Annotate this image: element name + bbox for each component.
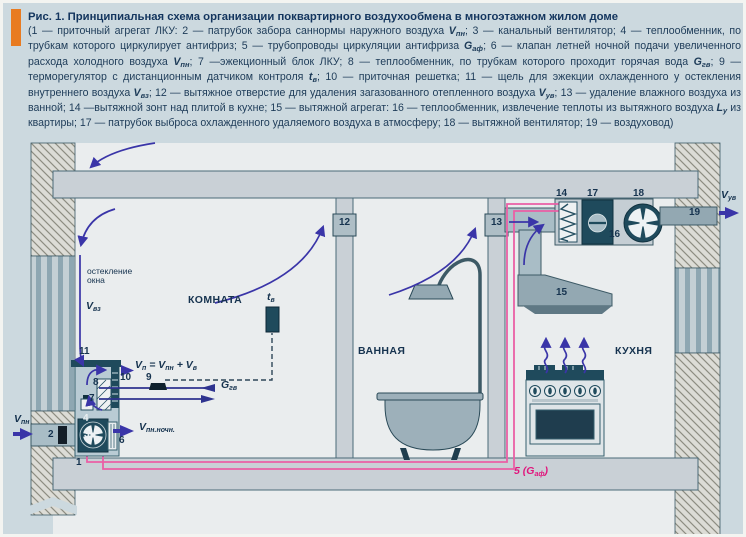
exhaust-fan-icon <box>624 204 662 242</box>
exhaust-opening-12 <box>333 214 356 236</box>
window-sill <box>71 360 121 367</box>
ceiling-slab <box>53 171 698 198</box>
heat-exchanger-8 <box>97 379 111 410</box>
diagram-canvas <box>3 3 746 537</box>
window-glazing-right <box>675 268 720 353</box>
oven-window <box>536 410 594 439</box>
ejection-block-7 <box>81 399 93 410</box>
night-valve-6 <box>108 422 117 450</box>
figure-page: Рис. 1. Принципиальная схема организации… <box>0 0 746 537</box>
thermoregulator-9 <box>149 383 167 390</box>
window-glazing-left <box>31 256 75 411</box>
supply-fan-icon <box>80 422 106 448</box>
shower-head <box>409 285 453 299</box>
temperature-sensor-tv <box>266 307 279 332</box>
intake-damper <box>58 426 67 444</box>
intake-duct-2 <box>31 424 79 446</box>
outlet-duct-19 <box>660 207 717 225</box>
gas-stove <box>526 365 604 456</box>
